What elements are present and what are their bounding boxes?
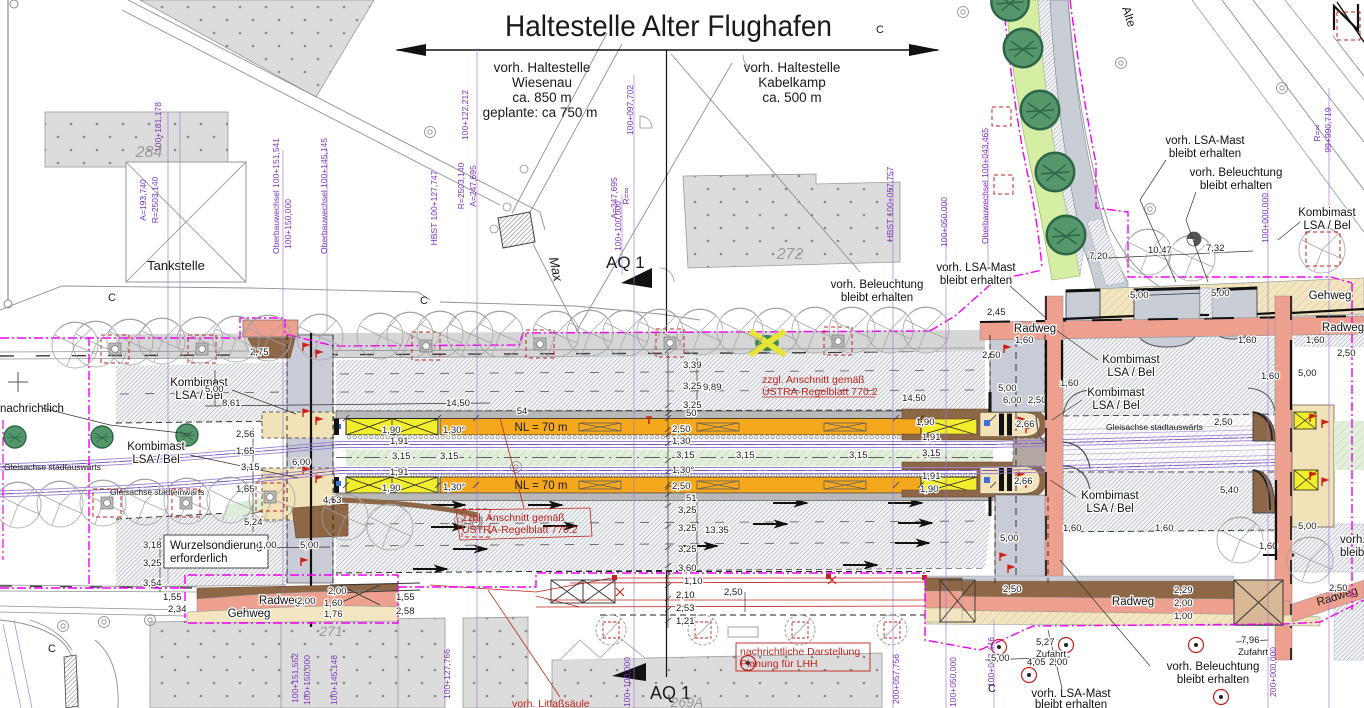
svg-text:3,25: 3,25 [678, 505, 697, 516]
svg-text:99+990,719: 99+990,719 [1323, 107, 1333, 152]
svg-text:3,15: 3,15 [241, 462, 260, 473]
svg-text:bleib: bleib [1340, 547, 1364, 559]
svg-text:2,50: 2,50 [982, 350, 1001, 361]
svg-text:100+127,766: 100+127,766 [442, 649, 452, 699]
svg-text:2,50: 2,50 [1028, 395, 1047, 406]
svg-text:1,55: 1,55 [163, 592, 182, 603]
svg-text:vorh. Beleuchtung: vorh. Beleuchtung [1190, 167, 1283, 179]
svg-text:Oberbauwechsel 100+043,465: Oberbauwechsel 100+043,465 [980, 128, 990, 244]
svg-text:Gehweg: Gehweg [1309, 290, 1352, 302]
svg-text:13,35: 13,35 [705, 525, 729, 536]
svg-text:2,50: 2,50 [672, 424, 691, 435]
svg-text:bleibt erhalten: bleibt erhalten [1035, 699, 1107, 708]
svg-text:zzgl. Anschnitt gemäß: zzgl. Anschnitt gemäß [762, 374, 865, 386]
svg-text:geplante: ca 750 m: geplante: ca 750 m [483, 105, 598, 120]
svg-text:R=∞: R=∞ [1312, 124, 1322, 141]
svg-text:LSA / Bel: LSA / Bel [132, 454, 179, 466]
svg-text:LSA / Bel: LSA / Bel [1107, 367, 1154, 379]
svg-text:2,00: 2,00 [328, 586, 347, 597]
svg-text:1,21: 1,21 [676, 616, 695, 627]
svg-text:1,60: 1,60 [324, 598, 343, 609]
svg-text:3,15: 3,15 [922, 448, 941, 459]
svg-text:100+097,702: 100+097,702 [625, 85, 635, 135]
svg-text:NL = 70 m: NL = 70 m [515, 480, 568, 492]
svg-text:2,53: 2,53 [676, 603, 695, 614]
svg-text:1,30: 1,30 [672, 436, 691, 447]
svg-text:2,50: 2,50 [1329, 583, 1348, 594]
svg-text:2,66: 2,66 [1014, 476, 1033, 487]
svg-text:3,25: 3,25 [678, 544, 697, 555]
svg-text:2,45: 2,45 [987, 307, 1006, 318]
svg-text:10,47: 10,47 [1148, 245, 1172, 256]
svg-text:2,50: 2,50 [724, 587, 743, 598]
svg-text:100+100,000: 100+100,000 [622, 657, 632, 707]
svg-text:bleibt erhalten: bleibt erhalten [841, 292, 913, 304]
svg-text:5,00: 5,00 [1211, 288, 1230, 299]
svg-text:C: C [48, 643, 56, 655]
svg-text:vorh.: vorh. [1340, 534, 1364, 546]
svg-text:5,00: 5,00 [1298, 521, 1317, 532]
svg-text:1,60: 1,60 [1063, 523, 1082, 534]
svg-text:272: 272 [776, 246, 804, 263]
svg-text:Wurzelsondierung: Wurzelsondierung [170, 540, 262, 552]
svg-text:3,15: 3,15 [849, 450, 868, 461]
svg-text:Oberbauwechsel 100+151,541: Oberbauwechsel 100+151,541 [271, 138, 281, 254]
svg-text:2,50: 2,50 [1337, 348, 1356, 359]
svg-text:200+057,756: 200+057,756 [891, 654, 901, 704]
svg-text:Wiesenau: Wiesenau [512, 75, 572, 90]
svg-text:1,91: 1,91 [390, 467, 409, 478]
svg-text:Radweg: Radweg [1014, 323, 1056, 335]
svg-text:271: 271 [318, 623, 342, 639]
svg-text:6,00: 6,00 [1003, 395, 1022, 406]
svg-text:7,32: 7,32 [1206, 243, 1225, 254]
svg-text:vorh. Beleuchtung: vorh. Beleuchtung [831, 279, 924, 291]
svg-text:Tankstelle: Tankstelle [147, 258, 205, 273]
svg-text:1,60: 1,60 [1261, 371, 1280, 382]
svg-text:5,00: 5,00 [1000, 533, 1019, 544]
svg-text:bleibt erhalten: bleibt erhalten [1177, 674, 1249, 686]
svg-text:vorh. Haltestelle: vorh. Haltestelle [494, 60, 591, 75]
svg-text:Kombimast: Kombimast [1081, 490, 1139, 502]
svg-text:vorh. LSA-Mast: vorh. LSA-Mast [1165, 135, 1245, 147]
svg-text:8,61: 8,61 [222, 398, 241, 409]
svg-text:2,00: 2,00 [1174, 598, 1193, 609]
svg-text:5,40: 5,40 [1220, 485, 1239, 496]
svg-text:2,58: 2,58 [396, 606, 415, 617]
svg-text:3,25: 3,25 [678, 523, 697, 534]
svg-text:3,15: 3,15 [392, 451, 411, 462]
svg-text:1,60: 1,60 [1015, 335, 1034, 346]
svg-text:Oberbauwechsel 100+145,145: Oberbauwechsel 100+145,145 [319, 138, 329, 254]
svg-text:bleibt erhalten: bleibt erhalten [1169, 148, 1241, 160]
svg-text:100+151,552: 100+151,552 [290, 653, 300, 703]
svg-text:269A: 269A [670, 694, 704, 708]
svg-text:7,96: 7,96 [1241, 635, 1260, 646]
svg-text:5,00: 5,00 [1298, 368, 1317, 379]
svg-text:200+000,000: 200+000,000 [1268, 647, 1278, 697]
svg-text:2,50: 2,50 [1003, 584, 1022, 595]
svg-text:1,65: 1,65 [236, 446, 255, 457]
svg-text:3,25: 3,25 [143, 558, 162, 569]
svg-text:5,00: 5,00 [998, 383, 1017, 394]
svg-text:1,55: 1,55 [396, 592, 415, 603]
svg-text:Kombimast: Kombimast [1298, 207, 1356, 219]
svg-text:1,30°: 1,30° [443, 425, 465, 436]
svg-text:2,50: 2,50 [1214, 417, 1233, 428]
svg-text:HBST 100+057,757: HBST 100+057,757 [885, 166, 895, 241]
svg-text:3,15: 3,15 [440, 451, 459, 462]
svg-text:1,30°: 1,30° [443, 482, 465, 493]
svg-text:HBST 100+127,747: HBST 100+127,747 [429, 170, 439, 245]
svg-text:100+145,148: 100+145,148 [329, 655, 339, 705]
svg-text:1,91: 1,91 [390, 436, 409, 447]
svg-text:3,54: 3,54 [143, 578, 162, 589]
svg-text:2,34: 2,34 [168, 604, 187, 615]
svg-text:Gleisachse stadtauswärts: Gleisachse stadtauswärts [1106, 422, 1203, 432]
svg-text:vorh. Litfaßsäule: vorh. Litfaßsäule [512, 698, 590, 708]
svg-text:nachrichtliche Darstellung: nachrichtliche Darstellung [740, 646, 860, 658]
svg-text:1,91: 1,91 [922, 432, 941, 443]
svg-text:3,18: 3,18 [143, 540, 162, 551]
svg-text:2,29: 2,29 [1174, 585, 1193, 596]
svg-text:LSA / Bel: LSA / Bel [1086, 503, 1133, 515]
svg-text:1,00: 1,00 [258, 540, 277, 551]
svg-text:2,66: 2,66 [1016, 419, 1035, 430]
svg-text:100+150,000: 100+150,000 [302, 655, 312, 705]
svg-text:ca. 500 m: ca. 500 m [762, 90, 821, 105]
svg-text:Radweg: Radweg [1112, 596, 1154, 608]
svg-text:100+050,000: 100+050,000 [939, 197, 949, 247]
svg-text:3,15: 3,15 [676, 450, 695, 461]
svg-text:R=2503,140: R=2503,140 [456, 162, 466, 209]
svg-text:vorh. LSA-Mast: vorh. LSA-Mast [936, 262, 1016, 274]
svg-text:Zufahrt: Zufahrt [1238, 647, 1268, 658]
svg-text:100+000,000: 100+000,000 [1260, 193, 1270, 243]
svg-text:ÜSTRA-Regelblatt 770.2: ÜSTRA-Regelblatt 770.2 [762, 386, 878, 398]
svg-text:Gehweg: Gehweg [228, 608, 271, 620]
svg-text:Radweg: Radweg [259, 595, 301, 607]
svg-text:2,50: 2,50 [672, 481, 691, 492]
svg-text:LSA / Bel: LSA / Bel [1303, 220, 1350, 232]
svg-text:5,27: 5,27 [1036, 637, 1055, 648]
svg-text:5,00: 5,00 [300, 540, 319, 551]
svg-text:3,25: 3,25 [683, 381, 702, 392]
svg-text:AQ 1: AQ 1 [606, 253, 645, 272]
svg-text:100+050,000: 100+050,000 [948, 657, 958, 707]
svg-text:1,90: 1,90 [920, 484, 939, 495]
svg-text:2,75: 2,75 [250, 347, 269, 358]
svg-text:100+122,212: 100+122,212 [460, 90, 470, 140]
svg-text:1,76: 1,76 [324, 609, 343, 620]
svg-text:Kabelkamp: Kabelkamp [758, 75, 826, 90]
svg-text:1,60: 1,60 [1238, 335, 1257, 346]
svg-text:1,00: 1,00 [1174, 611, 1193, 622]
svg-text:bleibt erhalten: bleibt erhalten [940, 275, 1012, 287]
svg-text:1,30°: 1,30° [672, 465, 694, 476]
svg-text:1,60: 1,60 [1259, 541, 1278, 552]
svg-text:Gleisachse stadtauswärts: Gleisachse stadtauswärts [4, 462, 101, 472]
svg-text:C: C [108, 292, 116, 304]
svg-text:NL = 70 m: NL = 70 m [515, 422, 568, 434]
svg-text:Planung für LHH: Planung für LHH [740, 658, 818, 670]
svg-text:54: 54 [517, 406, 528, 417]
svg-text:Kombimast: Kombimast [1102, 354, 1160, 366]
svg-text:A=247,695: A=247,695 [468, 165, 478, 207]
svg-text:vorh. Haltestelle: vorh. Haltestelle [744, 60, 841, 75]
svg-text:2,56: 2,56 [236, 429, 255, 440]
svg-text:1,10: 1,10 [684, 576, 703, 587]
svg-text:1,90: 1,90 [382, 483, 401, 494]
svg-text:14,50: 14,50 [446, 398, 470, 409]
svg-text:Zufahrt: Zufahrt [1036, 649, 1066, 660]
svg-text:ÜSTRA-Regelblatt 770.2: ÜSTRA-Regelblatt 770.2 [462, 524, 578, 536]
svg-text:Kombimast: Kombimast [127, 441, 185, 453]
svg-text:bleibt erhalten: bleibt erhalten [1200, 180, 1272, 192]
svg-text:6,00: 6,00 [292, 457, 311, 468]
svg-text:R=2503,140: R=2503,140 [150, 176, 160, 223]
svg-text:5,24: 5,24 [244, 517, 263, 528]
svg-text:3,15: 3,15 [736, 450, 755, 461]
svg-text:1,90: 1,90 [916, 417, 935, 428]
svg-text:nachrichtlich: nachrichtlich [0, 403, 64, 415]
svg-text:C: C [420, 295, 428, 307]
svg-text:51: 51 [686, 493, 697, 504]
svg-text:3,60: 3,60 [678, 563, 697, 574]
svg-text:1,90: 1,90 [382, 425, 401, 436]
svg-text:Kombimast: Kombimast [1087, 387, 1145, 399]
svg-text:A=193,740: A=193,740 [138, 179, 148, 221]
svg-text:zzgl. Anschnitt gemäß: zzgl. Anschnitt gemäß [462, 512, 565, 524]
svg-text:284: 284 [135, 144, 163, 161]
svg-text:5,00: 5,00 [205, 384, 224, 395]
svg-text:erforderlich: erforderlich [170, 553, 228, 565]
svg-text:5,00: 5,00 [1130, 290, 1149, 301]
svg-text:50: 50 [686, 408, 697, 419]
svg-text:7,20: 7,20 [1089, 251, 1108, 262]
svg-text:14,50: 14,50 [902, 393, 926, 404]
svg-text:2,00: 2,00 [297, 596, 316, 607]
svg-text:Radweg: Radweg [1322, 322, 1364, 334]
svg-text:Haltestelle Alter Flughafen: Haltestelle Alter Flughafen [505, 10, 832, 43]
svg-text:1,60: 1,60 [1306, 335, 1325, 346]
svg-text:100+100,000: 100+100,000 [613, 201, 623, 251]
svg-text:100+150,000: 100+150,000 [283, 199, 293, 249]
svg-text:2,10: 2,10 [676, 590, 695, 601]
svg-text:3,39: 3,39 [683, 360, 702, 371]
svg-text:C: C [876, 24, 884, 36]
svg-text:9,89: 9,89 [703, 382, 722, 393]
svg-text:1,91: 1,91 [922, 471, 941, 482]
svg-text:C: C [988, 683, 996, 695]
svg-text:LSA / Bel: LSA / Bel [1092, 400, 1139, 412]
svg-text:ca. 850 m: ca. 850 m [512, 90, 571, 105]
svg-text:5,00: 5,00 [991, 653, 1010, 664]
svg-text:1,60: 1,60 [1155, 523, 1174, 534]
svg-text:vorh. Beleuchtung: vorh. Beleuchtung [1167, 661, 1260, 673]
